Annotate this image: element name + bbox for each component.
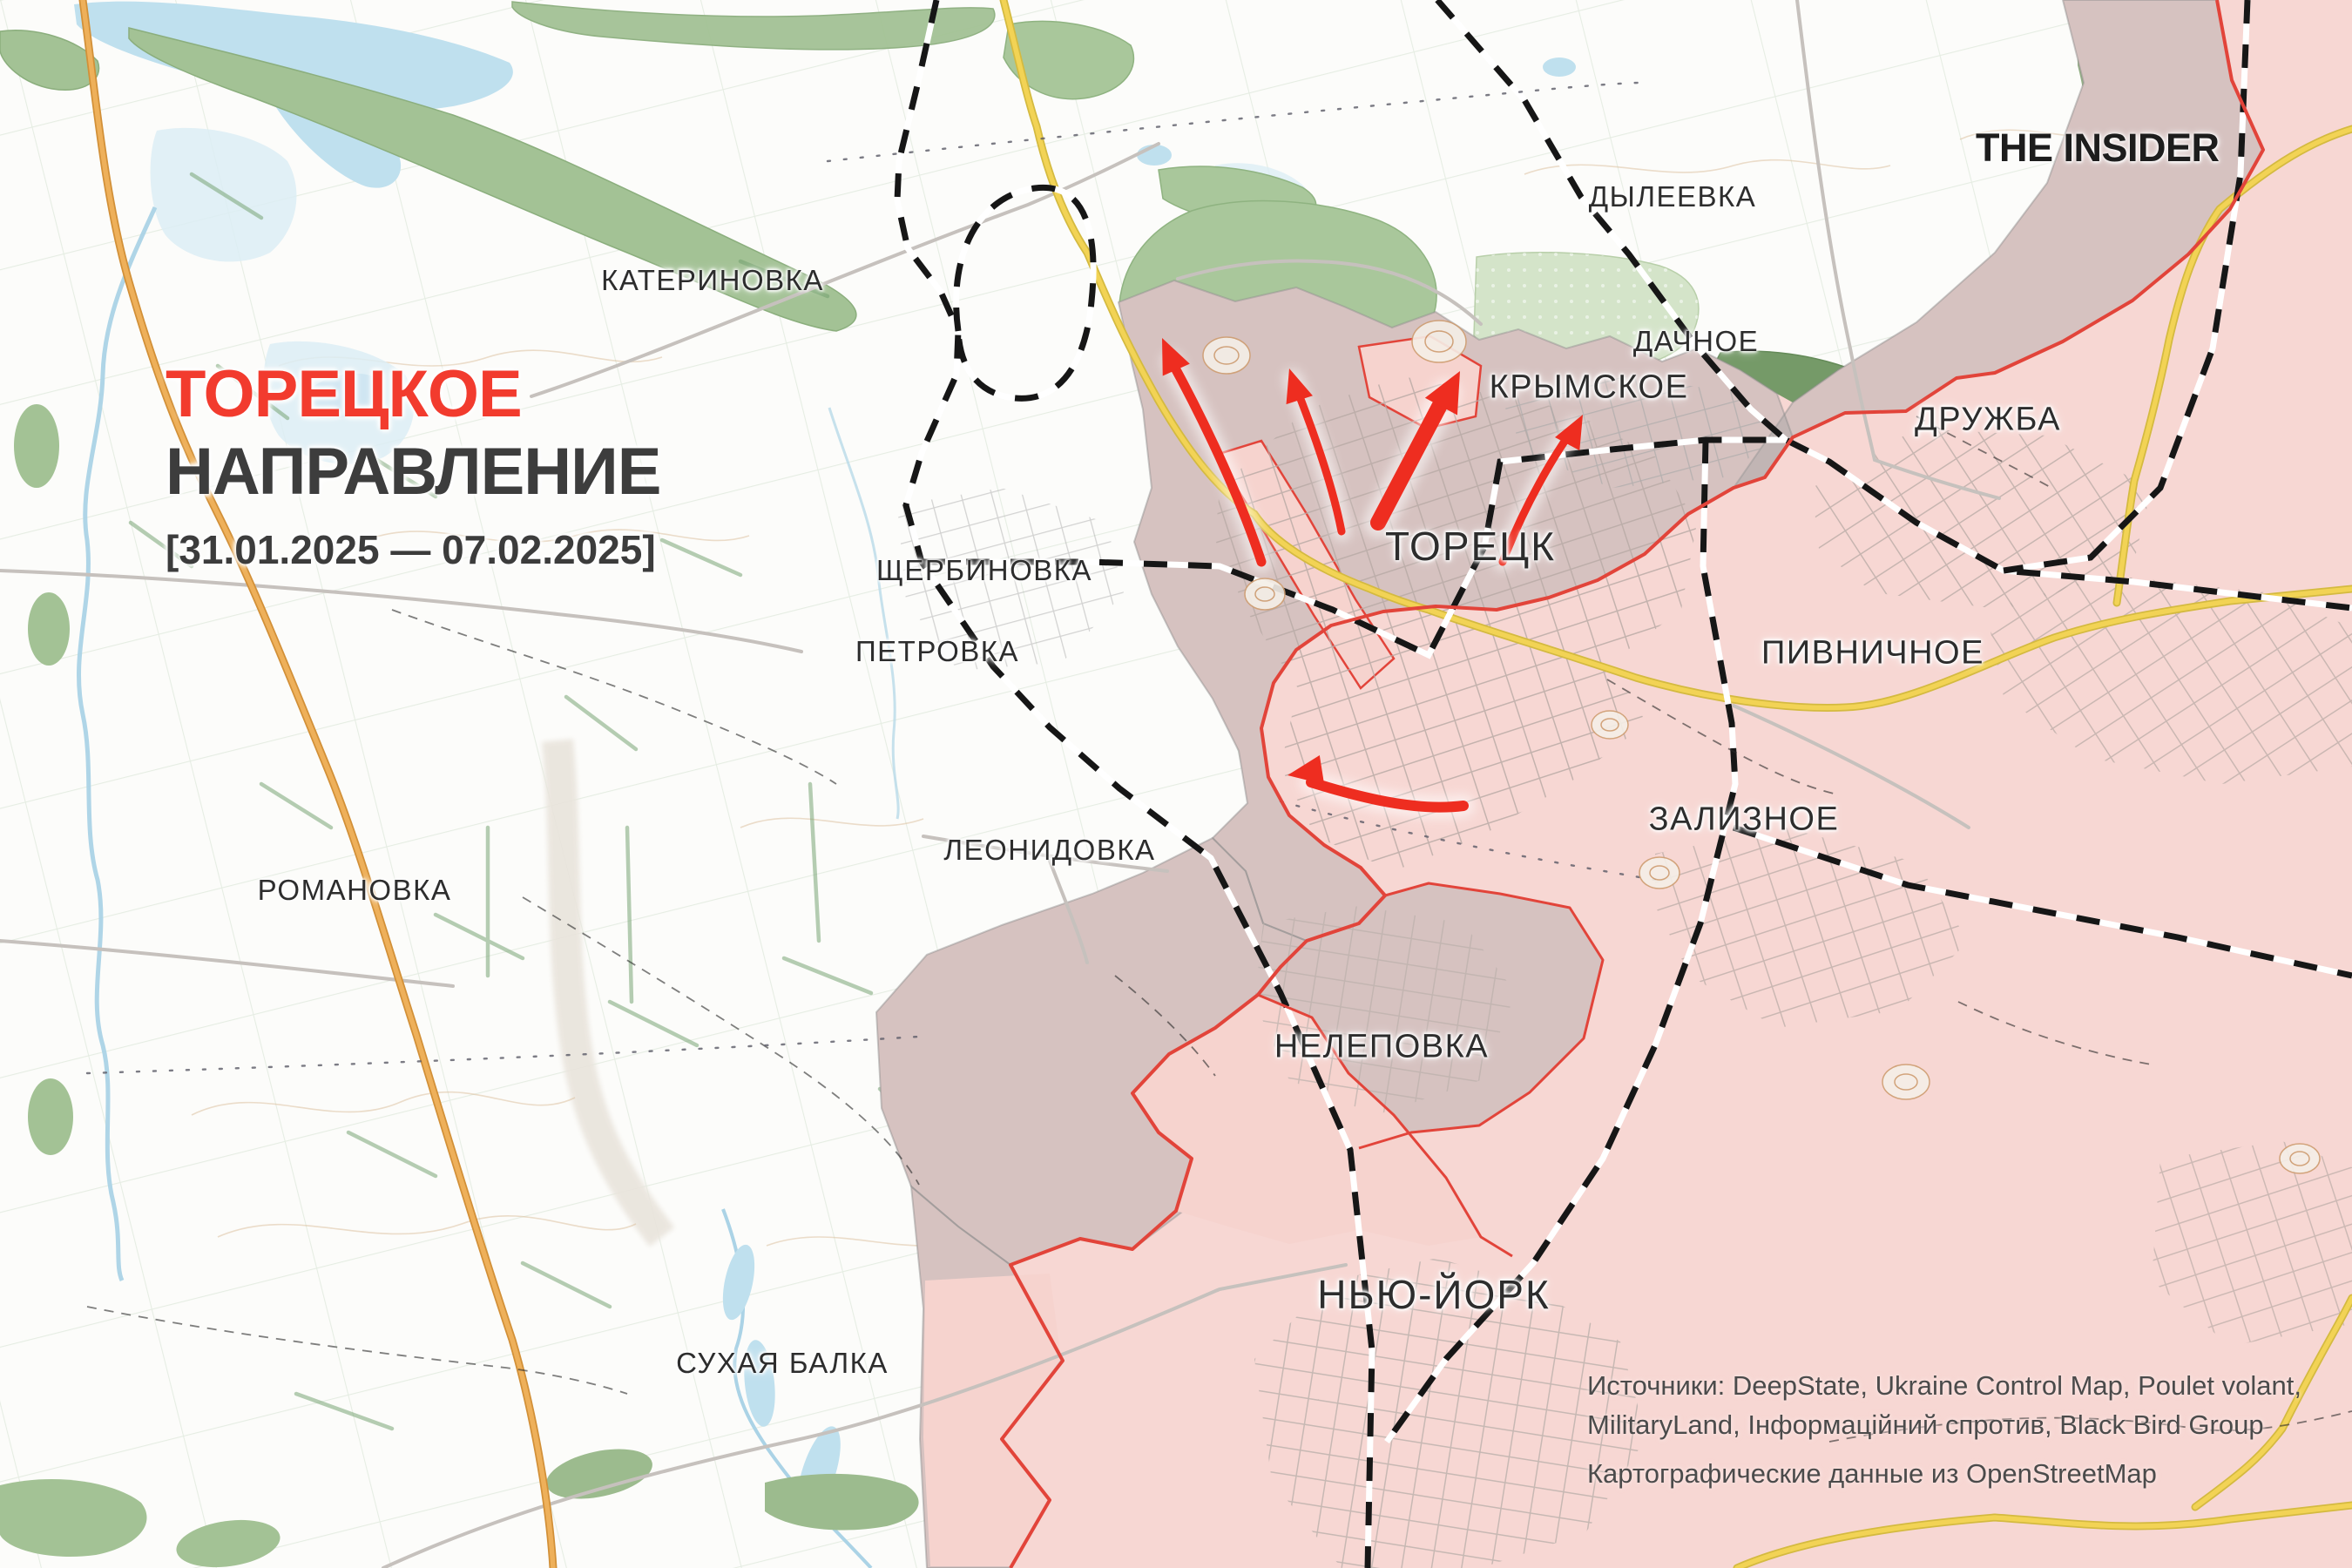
credits-sources-line1: Источники: DeepState, Ukraine Control Ma…: [1587, 1366, 2301, 1405]
place-label-toretsk: ТОРЕЦК: [1385, 523, 1556, 570]
map-title-line2: НАПРАВЛЕНИЕ: [166, 433, 661, 510]
map-canvas: КАТЕРИНОВКА ДЫЛЕЕВКА ДАЧНОЕ КРЫМСКОЕ ДРУ…: [0, 0, 2352, 1568]
place-label-dyleevka: ДЫЛЕЕВКА: [1589, 180, 1757, 213]
map-title-line1: ТОРЕЦКОЕ: [166, 355, 661, 433]
place-label-zaliznoe: ЗАЛИЗНОЕ: [1649, 801, 1840, 839]
place-label-pivnichnoe: ПИВНИЧНОЕ: [1761, 635, 1984, 672]
credits-sources-line2: MilitaryLand, Інформаційний спротив, Bla…: [1587, 1405, 2301, 1444]
place-label-leonidovka: ЛЕОНИДОВКА: [943, 834, 1155, 867]
place-label-shcherbinovka: ЩЕРБИНОВКА: [876, 554, 1092, 587]
map-date-range: [31.01.2025 — 07.02.2025]: [166, 526, 661, 573]
place-label-katerynovka: КАТЕРИНОВКА: [601, 264, 824, 297]
place-label-romanovka: РОМАНОВКА: [258, 874, 452, 907]
credits-block: Источники: DeepState, Ukraine Control Ma…: [1587, 1366, 2301, 1493]
place-label-new-york: НЬЮ-ЙОРК: [1317, 1271, 1551, 1318]
place-label-dachnoe: ДАЧНОЕ: [1633, 325, 1759, 358]
logo-the-insider: THE INSIDER: [1976, 125, 2220, 171]
place-label-nelepovka: НЕЛЕПОВКА: [1274, 1029, 1489, 1066]
place-labels: КАТЕРИНОВКА ДЫЛЕЕВКА ДАЧНОЕ КРЫМСКОЕ ДРУ…: [0, 0, 2352, 1568]
title-block: ТОРЕЦКОЕ НАПРАВЛЕНИЕ [31.01.2025 — 07.02…: [166, 355, 661, 573]
credits-cartography: Картографические данные из OpenStreetMap: [1587, 1454, 2301, 1493]
place-label-druzhba: ДРУЖБА: [1915, 402, 2061, 439]
place-label-sukhaya-balka: СУХАЯ БАЛКА: [676, 1347, 889, 1380]
place-label-petrovka: ПЕТРОВКА: [855, 635, 1019, 668]
place-label-krymskoe: КРЫМСКОЕ: [1490, 369, 1689, 407]
